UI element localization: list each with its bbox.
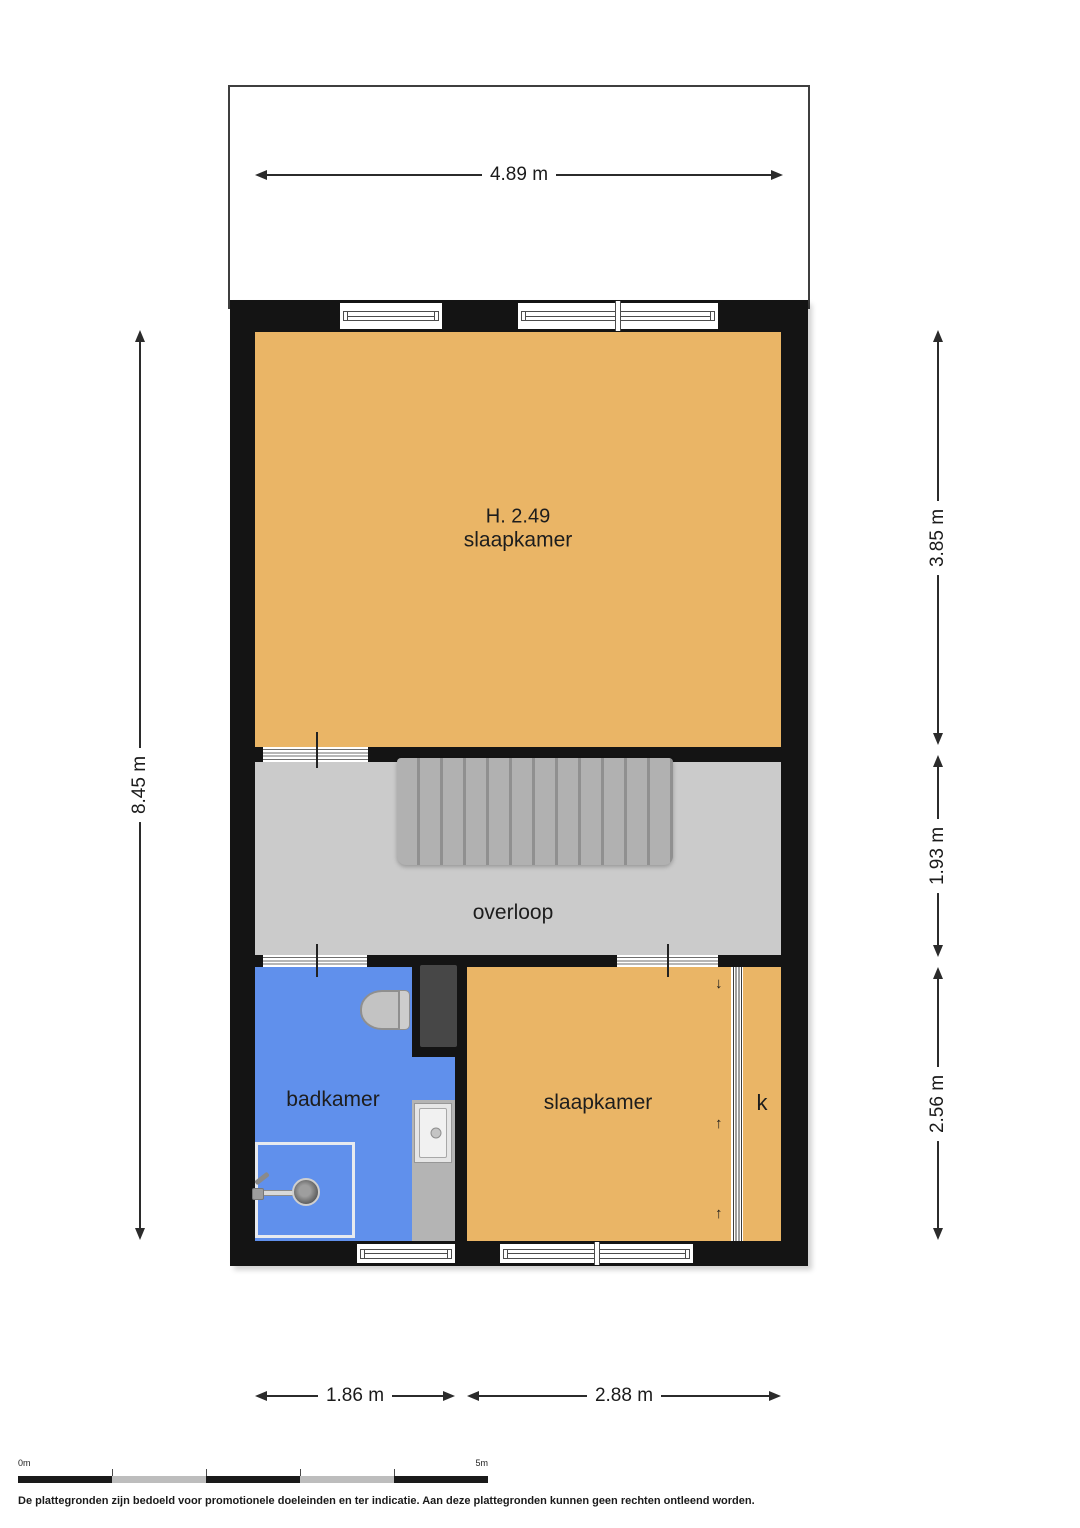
dimension-top-width: 4.89 m [255,163,783,187]
shower-head-icon [292,1178,320,1206]
label-closet: k [757,1090,768,1116]
shower-valve [252,1188,264,1200]
toilet-icon [360,990,410,1030]
dimension-line [661,1395,769,1397]
arrowhead-down-icon [135,1228,145,1240]
sink-icon [414,1103,452,1163]
label-landing: overloop [473,901,554,925]
scale-segment [18,1476,112,1483]
toilet-tank [398,991,409,1029]
arrowhead-up-icon [933,967,943,979]
arrowhead-left-icon [255,170,267,180]
label-room-height: H. 2.49 [464,506,573,529]
dimension-label-box: 1.93 m [926,819,950,893]
dimension-line [479,1395,587,1397]
dimension-line [392,1395,443,1397]
dimension-right-middle: 1.93 m [926,755,950,957]
building-plan: ↓ ↑ ↑ H. 2.49 slaapkamer overloop badkam… [230,300,808,1266]
scale-segment [112,1476,206,1483]
closet-arrow-down-icon: ↓ [715,976,723,991]
scale-bar: 0m 5m [18,1458,488,1486]
window-pane [343,311,439,321]
arrowhead-down-icon [933,945,943,957]
closet-sliding-door [731,967,743,1241]
duct-niche-inner [420,965,457,1047]
window-top-right [518,303,718,329]
window-divider [615,301,621,331]
arrowhead-up-icon [933,755,943,767]
scale-segment [394,1476,488,1483]
arrowhead-right-icon [771,170,783,180]
floorplan-page: 4.89 m [0,0,1080,1528]
label-bathroom: badkamer [286,1088,379,1112]
dimension-label-box: 2.56 m [926,1067,950,1141]
dimension-line [937,1141,939,1229]
window-divider [594,1242,600,1265]
arrowhead-right-icon [443,1391,455,1401]
label-room-name: slaapkamer [464,529,573,553]
dimension-line [937,575,939,734]
scale-segment [300,1476,394,1483]
scale-segment [206,1476,300,1483]
scale-start-label: 0m [18,1458,31,1468]
label-bedroom-small: slaapkamer [544,1091,653,1115]
dimension-label: 2.88 m [587,1385,661,1407]
dimension-right-top: 3.85 m [926,330,950,745]
dimension-label: 8.45 m [129,748,151,822]
dimension-label: 3.85 m [927,500,949,574]
footer-disclaimer: De plattegronden zijn bedoeld voor promo… [18,1495,1058,1507]
window-bottom-right [500,1244,693,1263]
sink-counter [412,1100,455,1241]
dimension-left-height: 8.45 m [128,330,152,1240]
dimension-line [139,342,141,748]
arrowhead-up-icon [135,330,145,342]
arrowhead-left-icon [467,1391,479,1401]
stairs [397,758,673,865]
window-top-left [340,303,442,329]
dimension-line [937,767,939,819]
arrowhead-down-icon [933,733,943,745]
dimension-label-box: 8.45 m [128,748,152,822]
scale-bar-segments [18,1476,488,1483]
label-bedroom-main: H. 2.49 slaapkamer [464,506,573,553]
arrowhead-right-icon [769,1391,781,1401]
closet-arrow-up-icon: ↑ [715,1206,723,1221]
sink-drain [430,1128,441,1139]
dimension-line [937,342,939,501]
dimension-bottom-left: 1.86 m [255,1384,455,1408]
door-leaf-line [316,732,318,768]
arrowhead-left-icon [255,1391,267,1401]
closet-arrow-up-icon: ↑ [715,1116,723,1131]
scale-end-label: 5m [475,1458,488,1468]
dimension-line [139,822,141,1228]
arrowhead-down-icon [933,1228,943,1240]
dimension-line [556,174,771,176]
arrowhead-up-icon [933,330,943,342]
window-pane [360,1249,452,1259]
dimension-label: 4.89 m [482,164,556,186]
dimension-label-box: 3.85 m [926,501,950,575]
dimension-bottom-right: 2.88 m [467,1384,781,1408]
dimension-label: 1.93 m [927,819,949,893]
door-bathroom [263,955,367,967]
door-leaf-line [667,944,669,977]
dimension-line [937,979,939,1067]
dimension-line [937,893,939,945]
dormer-outline [228,85,810,309]
dimension-line [267,1395,318,1397]
dimension-label: 2.56 m [927,1066,949,1140]
dimension-label: 1.86 m [318,1385,392,1407]
door-leaf-line [316,944,318,977]
duct-niche [412,955,467,1057]
dimension-right-bottom: 2.56 m [926,967,950,1240]
dimension-line [267,174,482,176]
window-bottom-left [357,1244,455,1263]
